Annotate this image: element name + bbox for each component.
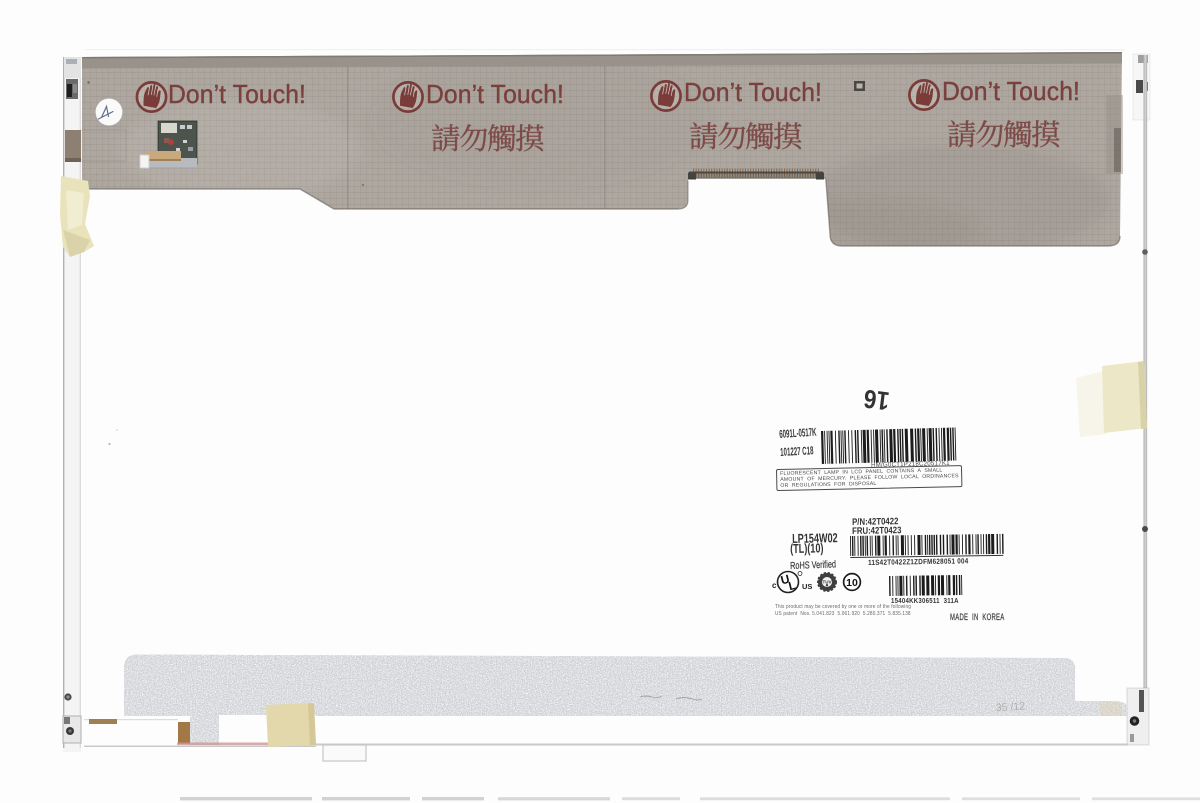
svg-text:TUV: TUV [823, 580, 832, 585]
svg-text:10: 10 [846, 577, 858, 589]
svg-text:c: c [772, 581, 777, 590]
svg-text:L: L [787, 578, 798, 593]
svg-text:US: US [802, 582, 812, 591]
svg-text:35 /12: 35 /12 [996, 700, 1026, 714]
